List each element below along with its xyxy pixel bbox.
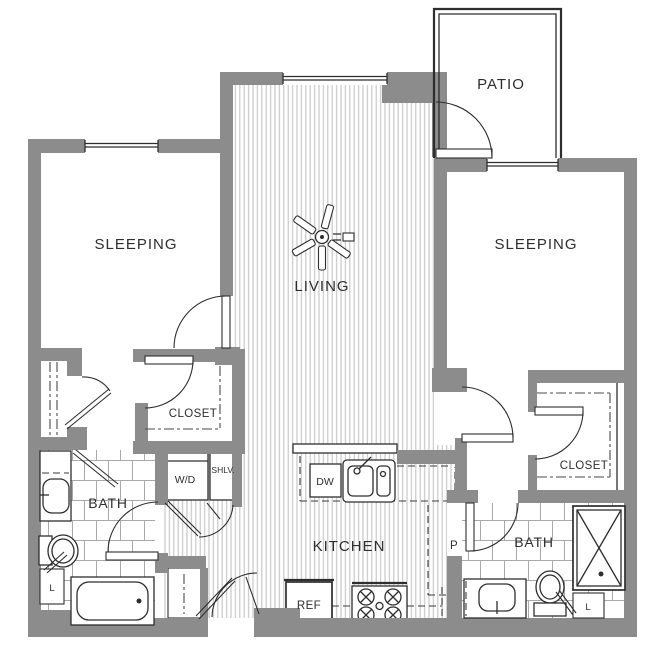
label-refrigerator: REF: [297, 600, 321, 612]
room-label-patio: PATIO: [477, 76, 525, 93]
kitchen-sink-icon: [343, 457, 395, 502]
room-label-closet-right: CLOSET: [560, 460, 608, 472]
room-label-living: LIVING: [294, 278, 349, 295]
label-linen-left: L: [49, 583, 54, 594]
window-living: [283, 72, 387, 85]
window-sleeping-right: [487, 158, 558, 172]
room-label-sleeping-right: SLEEPING: [494, 236, 577, 253]
floor-plan: SLEEPING SLEEPING LIVING PATIO KITCHEN B…: [0, 0, 664, 648]
room-label-kitchen: KITCHEN: [313, 538, 386, 555]
label-shelves: SHLV.: [211, 465, 234, 475]
label-dishwasher: DW: [316, 476, 334, 488]
label-pantry: P: [450, 540, 458, 552]
room-label-closet-left: CLOSET: [169, 408, 217, 420]
window-sleeping-left: [85, 139, 158, 153]
label-washer-dryer: W/D: [175, 474, 196, 486]
vanity-sink-left-icon: [40, 451, 71, 521]
bathtub-icon: [71, 577, 154, 625]
island-counter: [293, 444, 397, 453]
room-label-bath-left: BATH: [88, 495, 128, 511]
room-label-sleeping-left: SLEEPING: [94, 236, 177, 253]
entry-closet: [168, 568, 202, 618]
shower-icon: [573, 506, 625, 590]
label-linen-right: L: [585, 602, 590, 613]
vanity-sink-right-icon: [464, 579, 526, 618]
room-label-bath-right: BATH: [514, 534, 554, 550]
